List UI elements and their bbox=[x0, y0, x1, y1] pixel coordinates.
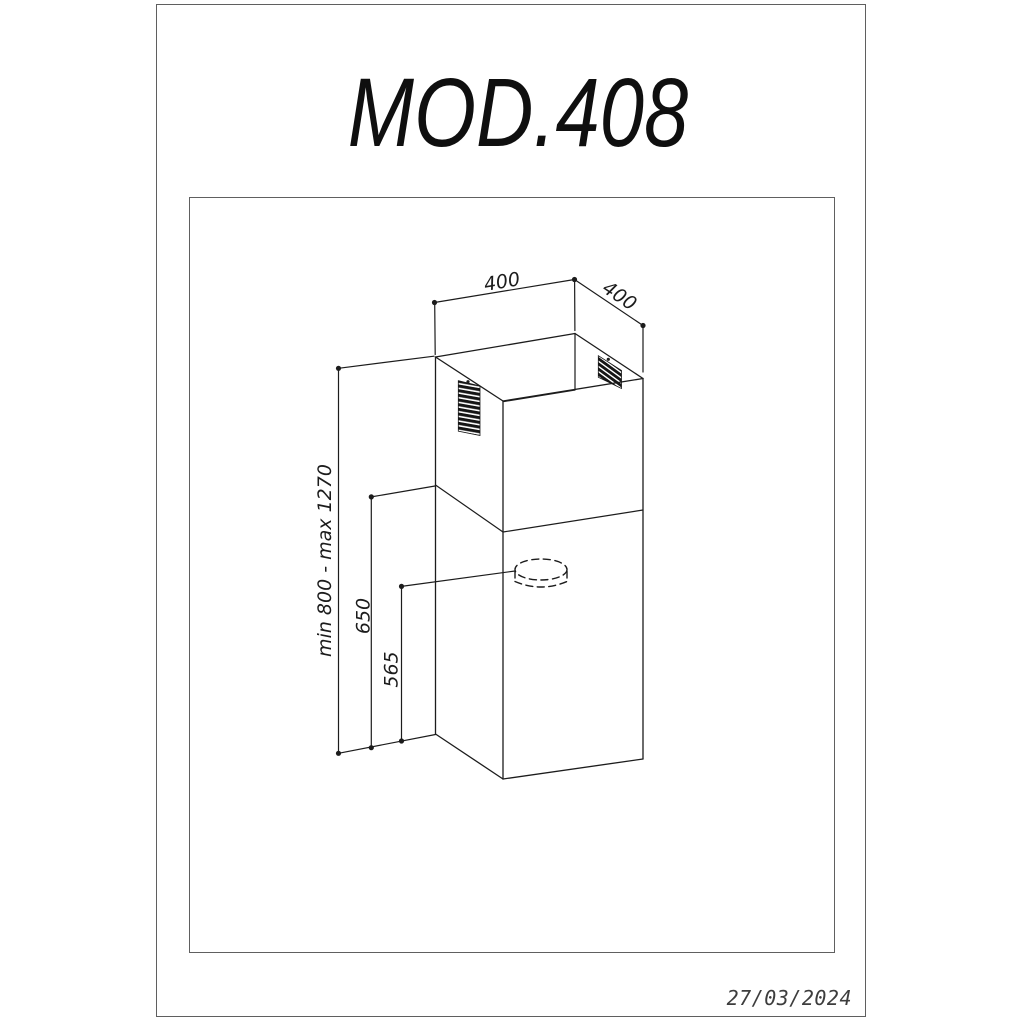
vent-grille-left bbox=[458, 380, 480, 435]
grille-screw-dot-right bbox=[607, 358, 610, 361]
grille-screw-dot-left bbox=[466, 380, 469, 383]
date-stamp: 27/03/2024 bbox=[600, 986, 852, 1010]
spec-sheet-page: MOD.408 bbox=[0, 0, 1024, 1024]
dim-label-outlet-height: 565 bbox=[381, 651, 403, 687]
section-seam bbox=[436, 485, 644, 532]
dim-label-height-range: min 800 - max 1270 bbox=[314, 464, 336, 657]
technical-drawing: 400 400 min 800 - max 1270 650 565 bbox=[0, 0, 1024, 1024]
duct-outlet-dashed bbox=[515, 559, 567, 587]
dim-label-lower-section-height: 650 bbox=[353, 598, 375, 634]
dim-label-top-width: 400 bbox=[482, 268, 521, 296]
